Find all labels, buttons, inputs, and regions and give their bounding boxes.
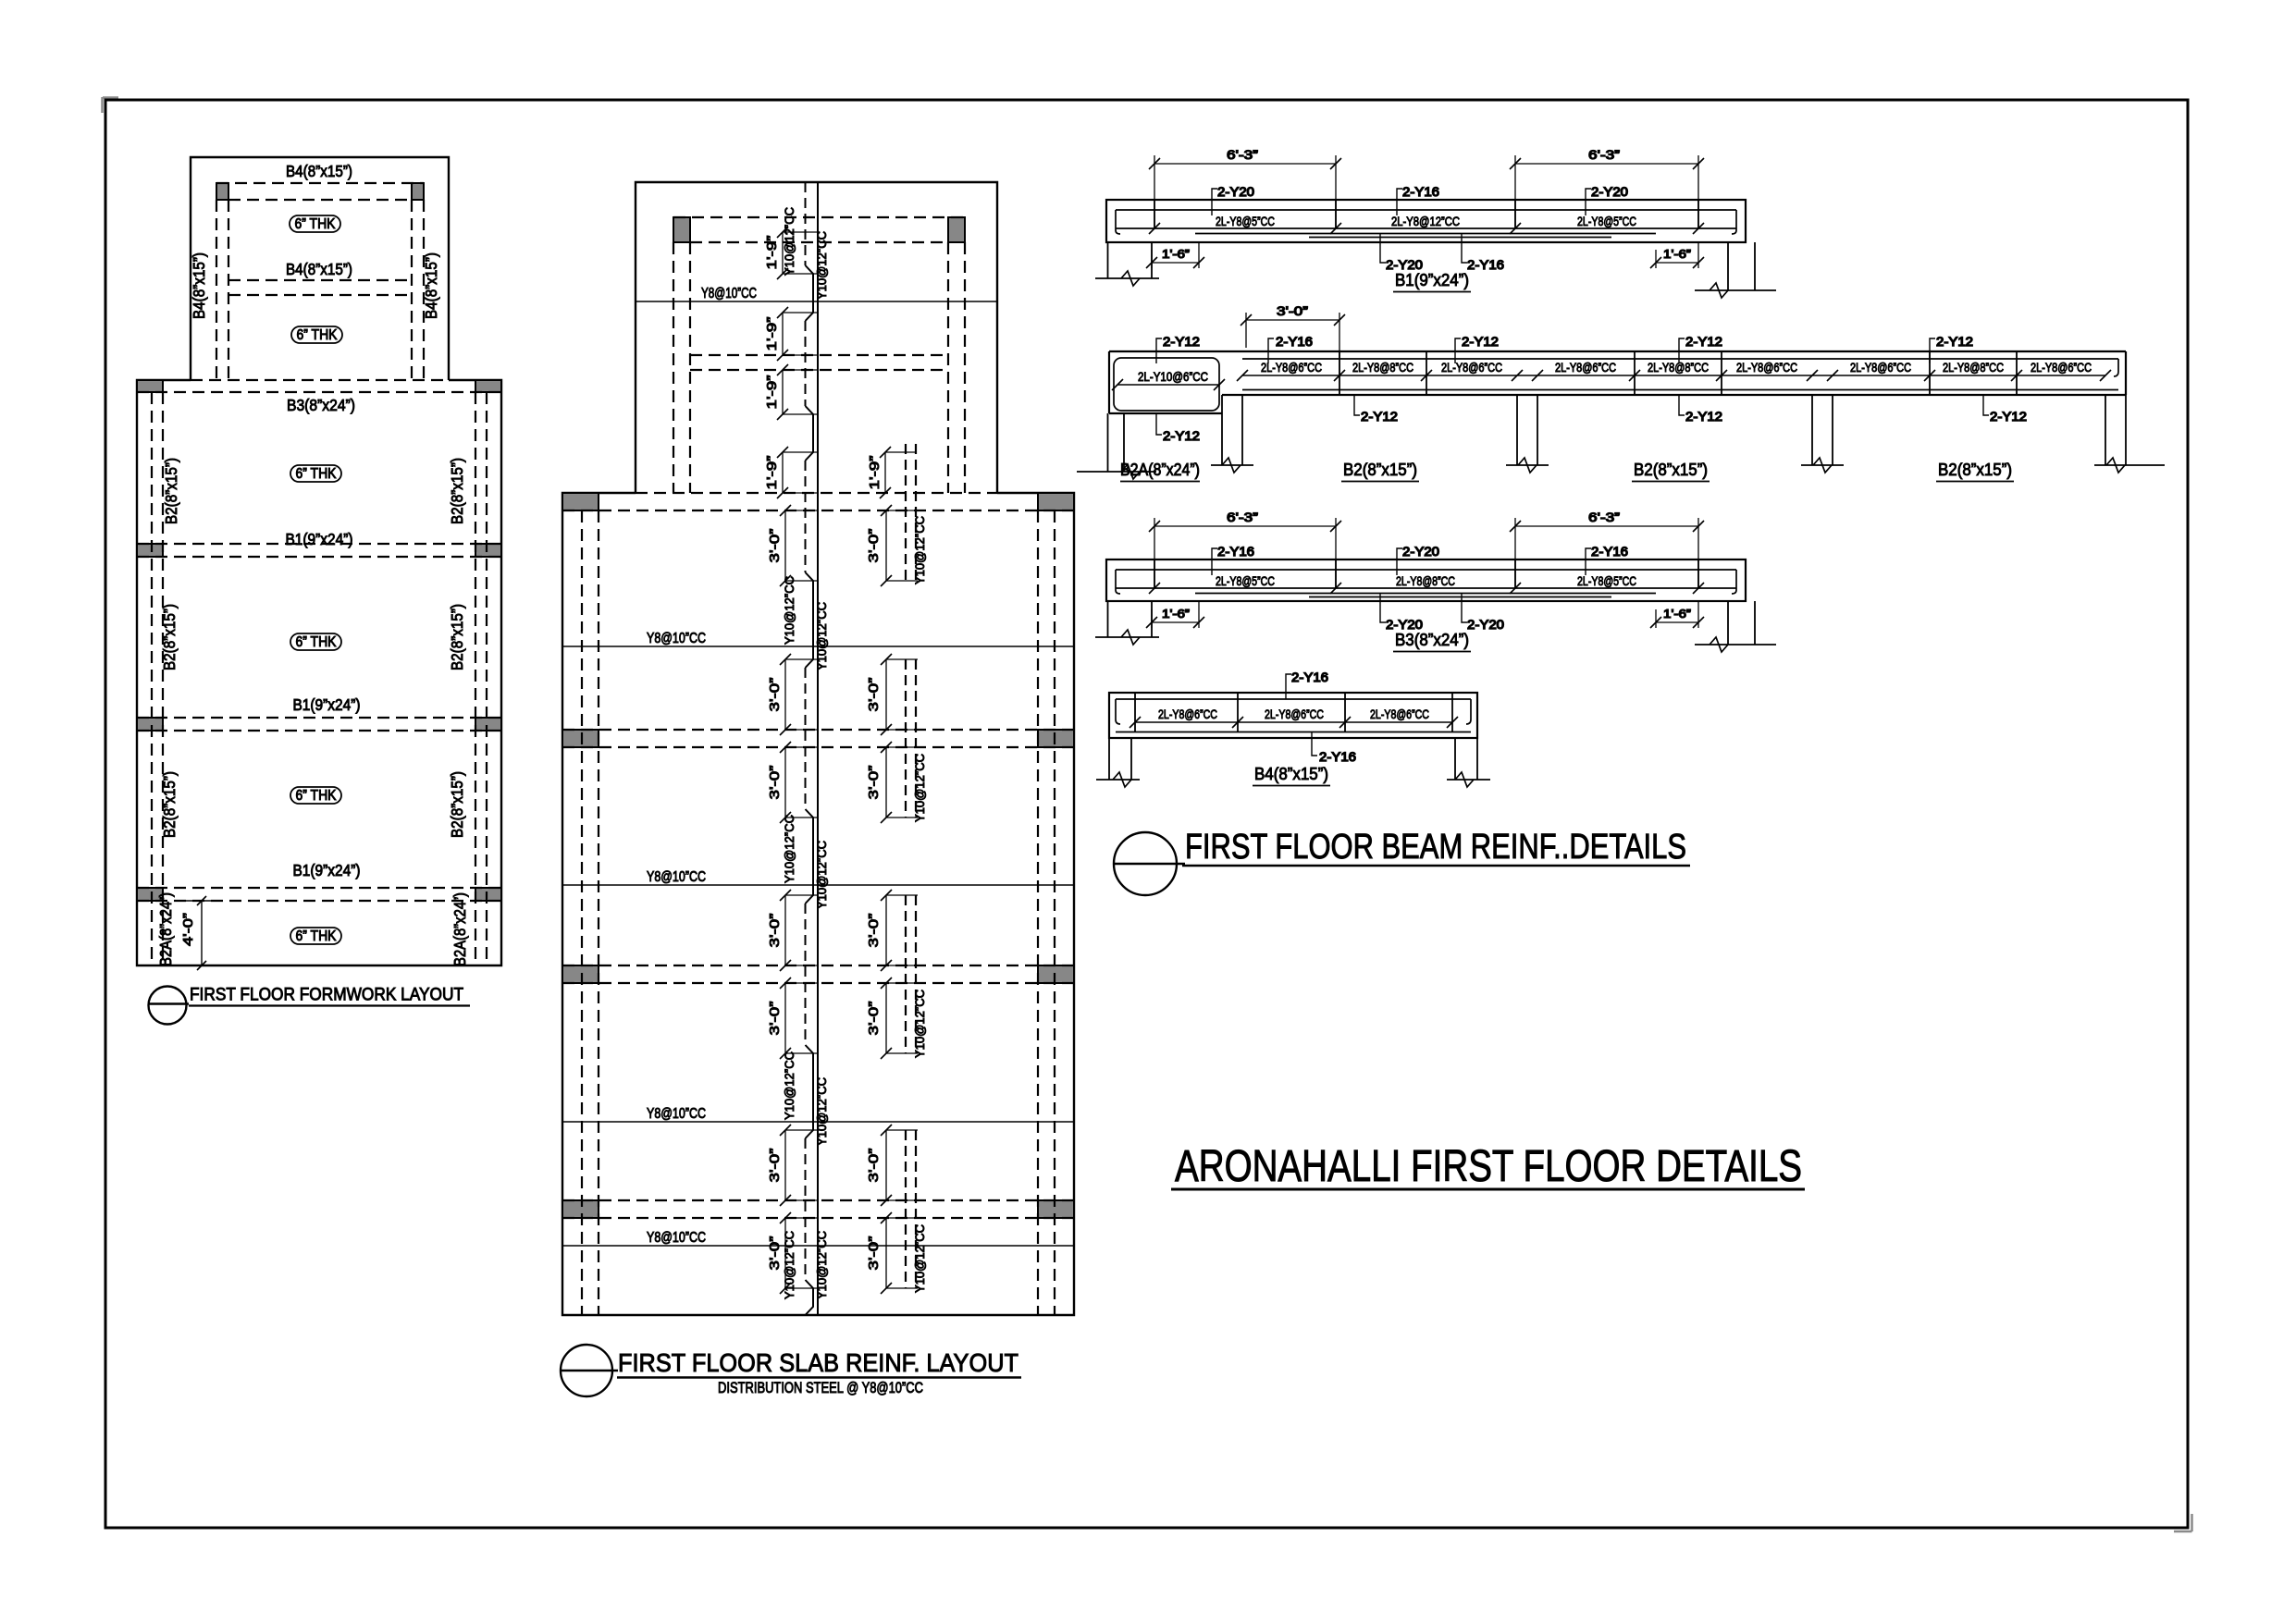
svg-text:2-Y12: 2-Y12 — [1163, 428, 1200, 443]
svg-text:2L-Y8@8”CC: 2L-Y8@8”CC — [1352, 361, 1413, 375]
svg-text:3'-0”: 3'-0” — [867, 1001, 882, 1035]
svg-text:2L-Y8@5”CC: 2L-Y8@5”CC — [1216, 214, 1275, 228]
svg-text:2-Y12: 2-Y12 — [1163, 334, 1200, 349]
svg-text:3'-0”: 3'-0” — [768, 765, 783, 799]
svg-text:Y10@12”CC: Y10@12”CC — [912, 1224, 927, 1293]
svg-text:Y10@12”CC: Y10@12”CC — [782, 576, 796, 645]
svg-text:3'-0”: 3'-0” — [768, 1148, 783, 1182]
svg-text:1'-9”: 1'-9” — [765, 455, 780, 489]
svg-text:B4(8”x15”): B4(8”x15”) — [286, 162, 352, 180]
svg-text:3'-0”: 3'-0” — [1277, 303, 1308, 318]
svg-text:2-Y16: 2-Y16 — [1291, 670, 1328, 684]
svg-text:Y10@12”CC: Y10@12”CC — [912, 754, 927, 822]
svg-text:2L-Y8@12”CC: 2L-Y8@12”CC — [1391, 214, 1460, 228]
svg-text:2-Y12: 2-Y12 — [1685, 334, 1722, 349]
svg-text:1'-6”: 1'-6” — [1162, 607, 1190, 621]
svg-text:Y8@10”CC: Y8@10”CC — [647, 1230, 706, 1246]
svg-text:6'-3”: 6'-3” — [1588, 510, 1620, 524]
svg-text:2-Y20: 2-Y20 — [1402, 544, 1439, 559]
svg-text:1'-6”: 1'-6” — [1663, 607, 1691, 621]
svg-text:B2(8”x15”): B2(8”x15”) — [448, 604, 466, 670]
svg-text:B4(8”x15”): B4(8”x15”) — [1254, 764, 1328, 783]
svg-text:6” THK: 6” THK — [296, 928, 338, 944]
svg-text:2L-Y8@6”CC: 2L-Y8@6”CC — [1850, 361, 1911, 375]
svg-text:2-Y20: 2-Y20 — [1467, 617, 1504, 632]
svg-text:B2(8”x15”): B2(8”x15”) — [448, 458, 466, 524]
svg-text:Y10@12”CC: Y10@12”CC — [912, 990, 927, 1058]
svg-text:B3(8”x24”): B3(8”x24”) — [287, 396, 355, 414]
svg-text:Y10@12”CC: Y10@12”CC — [782, 1231, 796, 1299]
svg-text:Y10@12”CC: Y10@12”CC — [814, 231, 829, 300]
svg-text:B2(8”x15”): B2(8”x15”) — [1343, 460, 1417, 479]
svg-text:B2(8”x15”): B2(8”x15”) — [160, 771, 179, 838]
svg-text:6'-3”: 6'-3” — [1588, 147, 1620, 162]
svg-text:B1(9”x24”): B1(9”x24”) — [293, 695, 361, 714]
svg-text:B1(9”x24”): B1(9”x24”) — [286, 530, 353, 548]
svg-text:B4(8”x15”): B4(8”x15”) — [286, 260, 352, 278]
svg-text:Y10@12”CC: Y10@12”CC — [814, 602, 829, 670]
svg-text:FIRST FLOOR FORMWORK LAYOUT: FIRST FLOOR FORMWORK LAYOUT — [190, 985, 463, 1005]
svg-text:3'-0”: 3'-0” — [867, 677, 882, 711]
svg-text:3'-0”: 3'-0” — [768, 913, 783, 947]
svg-text:Y10@12”CC: Y10@12”CC — [814, 841, 829, 909]
svg-text:B2A(8”x24”): B2A(8”x24”) — [1120, 460, 1200, 479]
svg-text:2L-Y8@6”CC: 2L-Y8@6”CC — [1158, 707, 1217, 721]
svg-text:3'-0”: 3'-0” — [867, 913, 882, 947]
svg-text:2L-Y8@5”CC: 2L-Y8@5”CC — [1577, 573, 1636, 588]
svg-text:Y8@10”CC: Y8@10”CC — [647, 631, 706, 646]
svg-text:B2(8”x15”): B2(8”x15”) — [160, 604, 179, 670]
svg-text:3'-0”: 3'-0” — [867, 528, 882, 562]
svg-text:3'-0”: 3'-0” — [768, 1001, 783, 1035]
svg-text:Y8@10”CC: Y8@10”CC — [647, 869, 706, 885]
svg-text:1'-9”: 1'-9” — [868, 455, 883, 489]
svg-text:2L-Y8@5”CC: 2L-Y8@5”CC — [1577, 214, 1636, 228]
svg-text:Y10@12”CC: Y10@12”CC — [814, 1231, 829, 1299]
svg-text:2-Y16: 2-Y16 — [1319, 749, 1356, 764]
svg-text:2L-Y8@6”CC: 2L-Y8@6”CC — [1555, 361, 1616, 375]
svg-text:1'-6”: 1'-6” — [1162, 247, 1190, 261]
svg-text:6'-3”: 6'-3” — [1227, 510, 1258, 524]
svg-text:2L-Y8@6”CC: 2L-Y8@6”CC — [2031, 361, 2092, 375]
svg-text:2-Y12: 2-Y12 — [1936, 334, 1973, 349]
svg-text:1'-9”: 1'-9” — [765, 375, 780, 409]
svg-text:6” THK: 6” THK — [295, 216, 337, 232]
svg-text:6” THK: 6” THK — [296, 466, 338, 482]
svg-text:B2(8”x15”): B2(8”x15”) — [1938, 460, 2012, 479]
svg-text:B1(9”x24”): B1(9”x24”) — [293, 861, 361, 879]
svg-text:Y10@12”CC: Y10@12”CC — [782, 207, 796, 276]
svg-text:FIRST FLOOR SLAB REINF. LAYOUT: FIRST FLOOR SLAB REINF. LAYOUT — [618, 1348, 1018, 1377]
svg-text:2-Y16: 2-Y16 — [1276, 334, 1313, 349]
svg-text:6” THK: 6” THK — [296, 634, 338, 650]
svg-text:B4(8”x15”): B4(8”x15”) — [422, 252, 440, 319]
svg-text:3'-0”: 3'-0” — [768, 528, 783, 562]
svg-text:2-Y16: 2-Y16 — [1402, 184, 1439, 199]
svg-text:1'-9”: 1'-9” — [765, 235, 780, 269]
svg-text:3'-0”: 3'-0” — [768, 1236, 783, 1270]
svg-text:Y10@12”CC: Y10@12”CC — [912, 516, 927, 584]
svg-text:2-Y12: 2-Y12 — [1685, 409, 1722, 424]
svg-text:2-Y12: 2-Y12 — [1361, 409, 1398, 424]
svg-text:2L-Y8@6”CC: 2L-Y8@6”CC — [1265, 707, 1324, 721]
svg-text:6” THK: 6” THK — [297, 327, 339, 343]
svg-text:Y8@10”CC: Y8@10”CC — [647, 1106, 706, 1122]
svg-text:2-Y12: 2-Y12 — [1990, 409, 2027, 424]
svg-text:3'-0”: 3'-0” — [867, 1148, 882, 1182]
svg-text:2-Y16: 2-Y16 — [1591, 544, 1628, 559]
svg-text:6'-3”: 6'-3” — [1227, 147, 1258, 162]
svg-text:FIRST FLOOR BEAM REINF..DETAIL: FIRST FLOOR BEAM REINF..DETAILS — [1185, 828, 1686, 867]
svg-text:B2(8”x15”): B2(8”x15”) — [448, 771, 466, 838]
svg-text:3'-0”: 3'-0” — [867, 1236, 882, 1270]
svg-text:3'-0”: 3'-0” — [768, 677, 783, 711]
svg-text:2L-Y8@8”CC: 2L-Y8@8”CC — [1648, 361, 1709, 375]
svg-text:4'-0”: 4'-0” — [180, 913, 196, 946]
svg-text:Y8@10”CC: Y8@10”CC — [701, 286, 757, 301]
svg-text:B2(8”x15”): B2(8”x15”) — [162, 458, 180, 524]
svg-text:2-Y20: 2-Y20 — [1217, 184, 1254, 199]
svg-text:DISTRIBUTION STEEL @ Y8@10”CC: DISTRIBUTION STEEL @ Y8@10”CC — [718, 1380, 923, 1396]
svg-text:B1(9”x24”): B1(9”x24”) — [1395, 270, 1469, 289]
svg-text:2L-Y10@6”CC: 2L-Y10@6”CC — [1138, 369, 1208, 384]
svg-text:2L-Y8@6”CC: 2L-Y8@6”CC — [1441, 361, 1502, 375]
svg-text:2-Y16: 2-Y16 — [1217, 544, 1254, 559]
svg-text:1'-6”: 1'-6” — [1663, 247, 1691, 261]
svg-text:B2(8”x15”): B2(8”x15”) — [1634, 460, 1708, 479]
svg-text:ARONAHALLI FIRST FLOOR DETAILS: ARONAHALLI FIRST FLOOR DETAILS — [1175, 1142, 1802, 1191]
svg-text:2-Y16: 2-Y16 — [1467, 257, 1504, 272]
svg-text:2L-Y8@6”CC: 2L-Y8@6”CC — [1736, 361, 1797, 375]
svg-text:B2A(8”x24”): B2A(8”x24”) — [156, 892, 175, 966]
svg-text:2L-Y8@5”CC: 2L-Y8@5”CC — [1216, 573, 1275, 588]
svg-text:2L-Y8@8”CC: 2L-Y8@8”CC — [1943, 361, 2004, 375]
svg-text:3'-0”: 3'-0” — [867, 765, 882, 799]
svg-text:Y10@12”CC: Y10@12”CC — [782, 1051, 796, 1120]
svg-text:B4(8”x15”): B4(8”x15”) — [190, 252, 208, 319]
svg-text:B2A(8”x24”): B2A(8”x24”) — [451, 892, 469, 966]
svg-text:1'-9”: 1'-9” — [765, 316, 780, 350]
svg-text:B3(8”x24”): B3(8”x24”) — [1395, 630, 1469, 649]
svg-text:6” THK: 6” THK — [296, 788, 338, 804]
svg-text:2L-Y8@6”CC: 2L-Y8@6”CC — [1370, 707, 1429, 721]
svg-text:2L-Y8@6”CC: 2L-Y8@6”CC — [1261, 361, 1322, 375]
svg-text:Y10@12”CC: Y10@12”CC — [782, 815, 796, 883]
svg-text:2-Y20: 2-Y20 — [1591, 184, 1628, 199]
svg-text:2L-Y8@8”CC: 2L-Y8@8”CC — [1396, 573, 1455, 588]
svg-text:2-Y12: 2-Y12 — [1462, 334, 1499, 349]
svg-text:Y10@12”CC: Y10@12”CC — [814, 1077, 829, 1146]
